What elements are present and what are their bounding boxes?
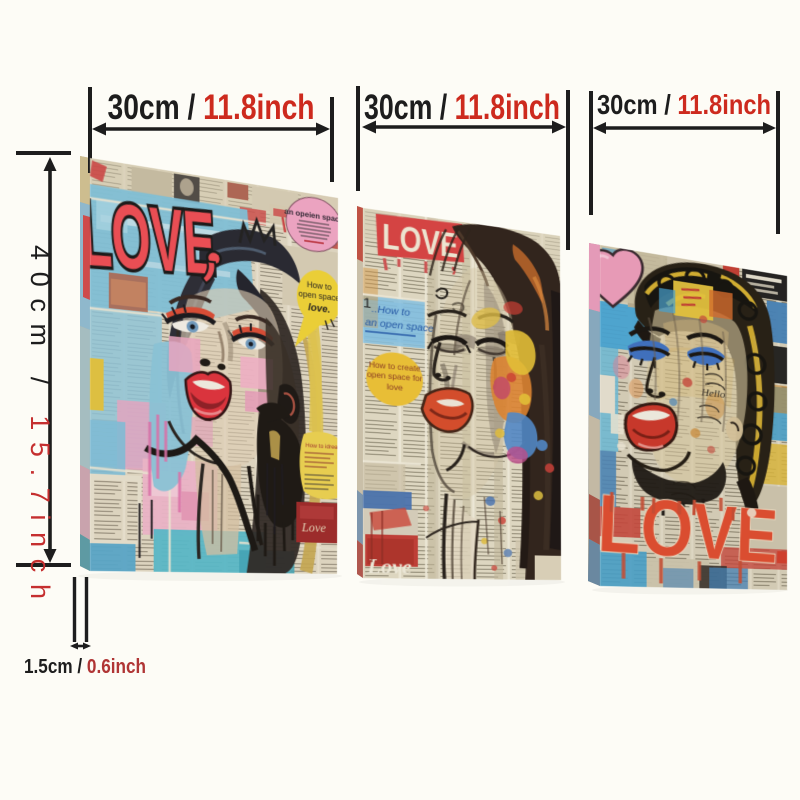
svg-text:30cm / 11.8inch: 30cm / 11.8inch (364, 88, 560, 127)
svg-text:30cm / 11.8inch: 30cm / 11.8inch (108, 88, 315, 127)
svg-text:30cm / 11.8inch: 30cm / 11.8inch (597, 89, 771, 120)
svg-text:40cm / 15.7inch: 40cm / 15.7inch (25, 245, 55, 599)
svg-text:1.5cm / 0.6inch: 1.5cm / 0.6inch (24, 655, 146, 678)
